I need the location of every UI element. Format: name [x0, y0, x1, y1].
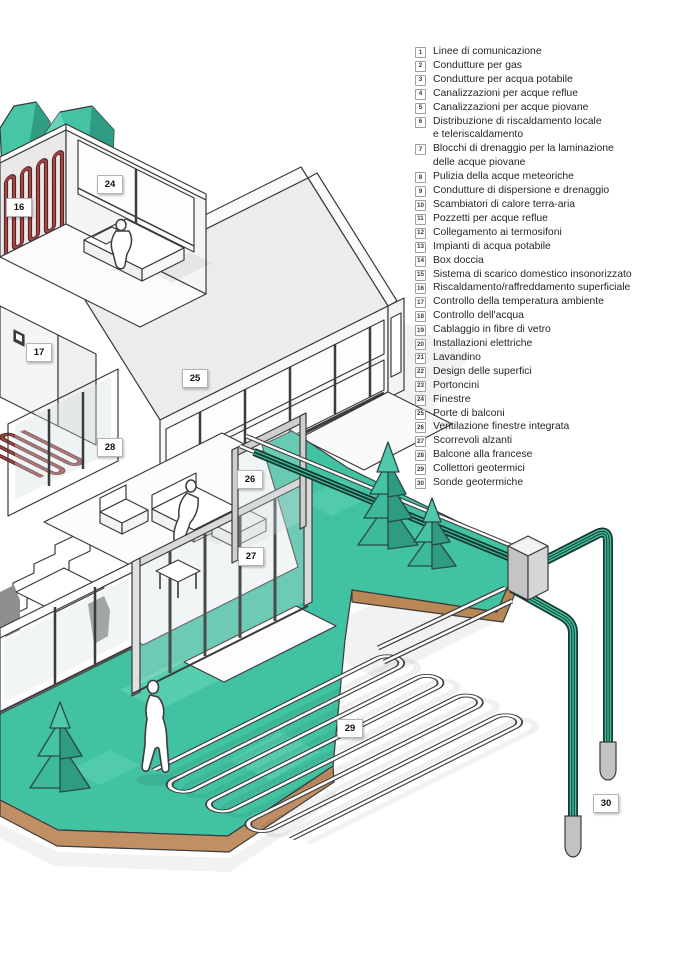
- legend-item: 2Condutture per gas: [415, 59, 671, 73]
- legend-item: 22Design delle superfici: [415, 365, 671, 379]
- legend-item: 28Balcone alla francese: [415, 448, 671, 462]
- isometric-house-diagram: 16 24 17 25 28 26 27 29 30 1Linee di com…: [0, 0, 678, 959]
- marker-17: 17: [26, 343, 52, 362]
- probe-cap: [565, 816, 581, 857]
- marker-16: 16: [6, 198, 32, 217]
- bedroom-room: [0, 124, 212, 327]
- legend-item: 26Ventilazione finestre integrata: [415, 420, 671, 434]
- legend-item: 15Sistema di scarico domestico insonoriz…: [415, 268, 671, 282]
- manifold-box: [508, 536, 548, 600]
- legend-item: 5Canalizzazioni per acque piovane: [415, 101, 671, 115]
- legend-item: 23Portoncini: [415, 379, 671, 393]
- legend-item: 13Impianti di acqua potabile: [415, 240, 671, 254]
- legend-item: 17Controllo della temperatura ambiente: [415, 295, 671, 309]
- legend-item: 30Sonde geotermiche: [415, 476, 671, 490]
- marker-28: 28: [97, 438, 123, 457]
- legend-item: 19Cablaggio in fibre di vetro: [415, 323, 671, 337]
- marker-27: 27: [238, 547, 264, 566]
- marker-30: 30: [593, 794, 619, 813]
- legend-item: 21Lavandino: [415, 351, 671, 365]
- legend-item: 9Condutture di dispersione e drenaggio: [415, 184, 671, 198]
- legend-item: 18Controllo dell'acqua: [415, 309, 671, 323]
- legend-item: 7Blocchi di drenaggio per la laminazione…: [415, 142, 671, 170]
- legend-item: 25Porte di balconi: [415, 407, 671, 421]
- legend-item: 29Collettori geotermici: [415, 462, 671, 476]
- marker-24: 24: [97, 175, 123, 194]
- legend: 1Linee di comunicazione 2Condutture per …: [415, 45, 671, 490]
- legend-item: 6Distribuzione di riscaldamento localee …: [415, 115, 671, 143]
- marker-29: 29: [337, 719, 363, 738]
- legend-item: 11Pozzetti per acque reflue: [415, 212, 671, 226]
- legend-item: 27Scorrevoli alzanti: [415, 434, 671, 448]
- legend-item: 12Collegamento ai termosifoni: [415, 226, 671, 240]
- marker-26: 26: [237, 470, 263, 489]
- legend-item: 16Riscaldamento/raffreddamento superfici…: [415, 281, 671, 295]
- legend-item: 10Scambiatori di calore terra-aria: [415, 198, 671, 212]
- legend-item: 14Box doccia: [415, 254, 671, 268]
- legend-item: 8Pulizia della acque meteoriche: [415, 170, 671, 184]
- legend-item: 20Installazioni elettriche: [415, 337, 671, 351]
- marker-25: 25: [182, 369, 208, 388]
- legend-item: 24Finestre: [415, 393, 671, 407]
- probe-cap: [600, 742, 616, 780]
- legend-item: 3Condutture per acqua potabile: [415, 73, 671, 87]
- legend-item: 4Canalizzazioni per acque reflue: [415, 87, 671, 101]
- legend-item: 1Linee di comunicazione: [415, 45, 671, 59]
